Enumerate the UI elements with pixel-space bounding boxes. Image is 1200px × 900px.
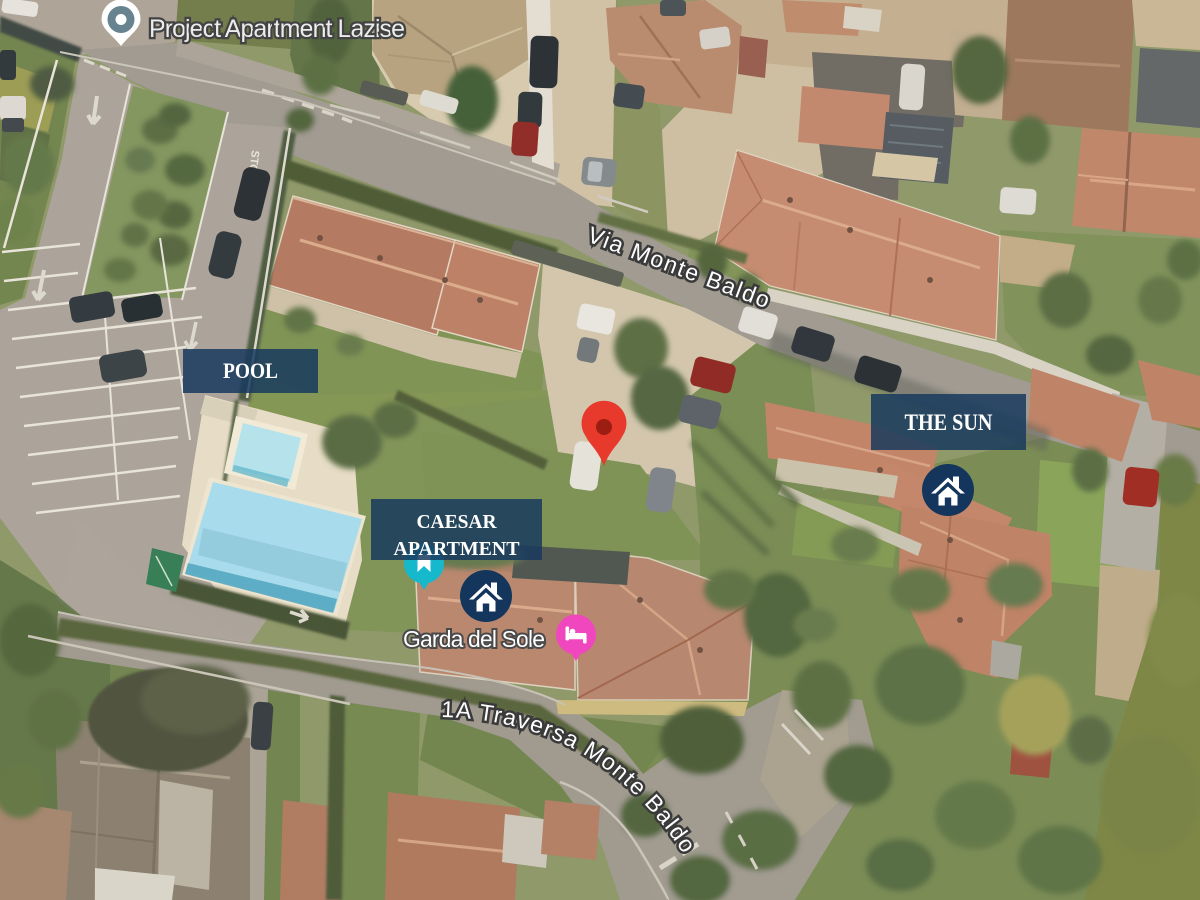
svg-text:Project Apartment Lazise: Project Apartment Lazise xyxy=(149,15,405,43)
svg-text:THE SUN: THE SUN xyxy=(905,410,993,435)
svg-text:APARTMENT: APARTMENT xyxy=(394,538,521,560)
svg-text:CAESAR: CAESAR xyxy=(417,511,498,533)
svg-text:Garda del Sole: Garda del Sole xyxy=(403,626,545,652)
svg-text:POOL: POOL xyxy=(223,358,278,383)
